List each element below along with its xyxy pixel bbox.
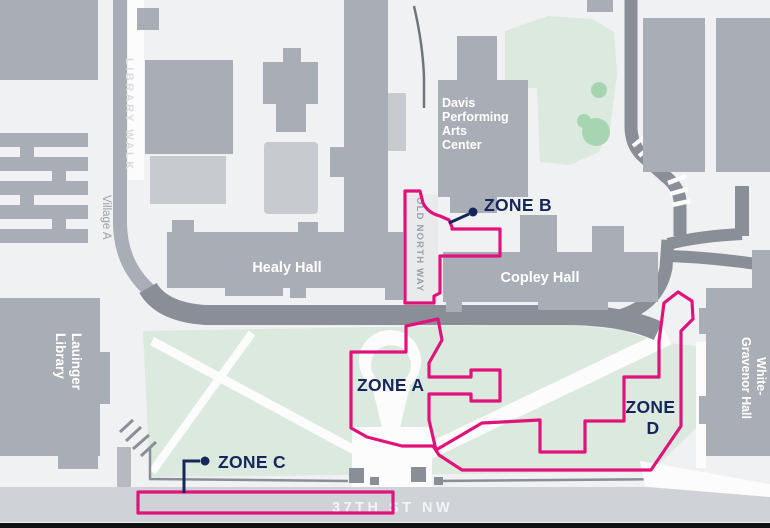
building (137, 8, 159, 30)
gate-pillar (370, 477, 379, 485)
tree (591, 82, 607, 98)
gate-pillar (411, 467, 426, 482)
gate-pillar (349, 468, 364, 483)
building (752, 250, 770, 290)
zone-b-label: ZONE B (484, 195, 552, 215)
tree (577, 114, 591, 128)
building (264, 142, 318, 214)
zone-c-label: ZONE C (218, 452, 286, 472)
building (0, 0, 98, 80)
building-lauinger (0, 298, 110, 469)
frame-bottom-bar (0, 523, 770, 528)
building (150, 156, 226, 204)
campus-map-svg: 37TH ST NW Healy Hall Copley Hall Davis … (0, 0, 770, 528)
gate-pillar (434, 477, 443, 485)
building (587, 0, 613, 12)
zone-b-callout-dot (469, 208, 478, 217)
zone-c-callout-dot (201, 457, 210, 466)
campus-map: 37TH ST NW Healy Hall Copley Hall Davis … (0, 0, 770, 528)
village-a-label: Village A (100, 195, 112, 240)
copley-hall-label: Copley Hall (501, 270, 580, 286)
library-walk-label: LIBRARY WALK (123, 58, 135, 172)
building (716, 18, 770, 172)
healy-hall-label: Healy Hall (252, 260, 321, 276)
zone-a-label: ZONE A (357, 375, 424, 395)
building (145, 60, 233, 154)
old-north-way-label: OLD NORTH WAY (414, 197, 425, 292)
building (388, 93, 406, 151)
healy-tower (344, 0, 388, 235)
ramp (117, 447, 131, 487)
building (643, 18, 705, 172)
building (330, 147, 344, 177)
